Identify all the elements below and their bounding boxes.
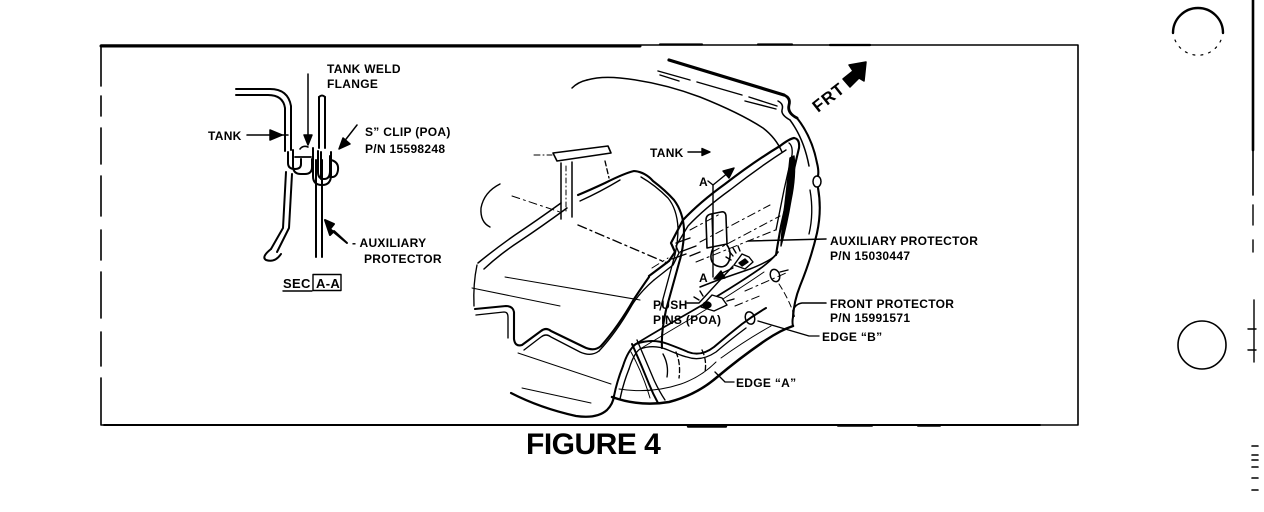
svg-text:EDGE “A”: EDGE “A”	[736, 376, 796, 390]
svg-text:SEC: SEC	[283, 276, 311, 291]
svg-text:S” CLIP (POA): S” CLIP (POA)	[365, 125, 451, 139]
svg-text:TANK: TANK	[650, 146, 684, 160]
svg-text:- AUXILIARY: - AUXILIARY	[352, 236, 426, 250]
svg-text:EDGE “B”: EDGE “B”	[822, 330, 882, 344]
svg-text:FRT: FRT	[809, 79, 849, 116]
svg-text:AUXILIARY PROTECTOR: AUXILIARY PROTECTOR	[830, 234, 978, 248]
svg-text:TANK WELD: TANK WELD	[327, 62, 401, 76]
svg-text:A: A	[699, 271, 708, 285]
svg-text:TANK: TANK	[208, 129, 242, 143]
svg-text:PUSH: PUSH	[653, 298, 688, 312]
svg-text:FLANGE: FLANGE	[327, 77, 378, 91]
svg-text:P/N 15991571: P/N 15991571	[830, 311, 910, 325]
svg-text:FIGURE 4: FIGURE 4	[526, 428, 661, 461]
svg-text:FRONT PROTECTOR: FRONT PROTECTOR	[830, 297, 954, 311]
svg-text:PROTECTOR: PROTECTOR	[364, 252, 442, 266]
svg-text:A-A: A-A	[316, 276, 340, 291]
svg-text:P/N 15030447: P/N 15030447	[830, 249, 910, 263]
svg-text:P/N 15598248: P/N 15598248	[365, 142, 445, 156]
svg-text:PINS (POA): PINS (POA)	[653, 313, 721, 327]
svg-text:A: A	[699, 175, 708, 189]
